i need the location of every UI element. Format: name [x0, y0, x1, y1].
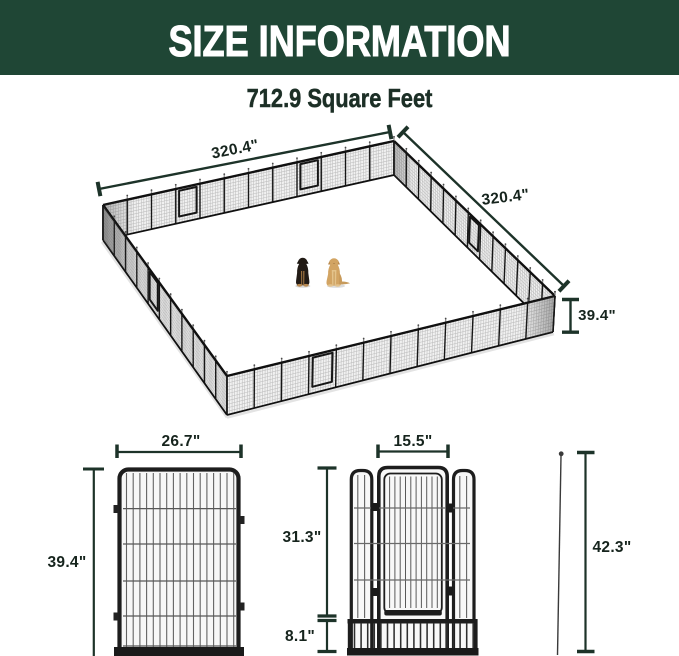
svg-text:39.4": 39.4"	[578, 307, 616, 324]
svg-text:31.3": 31.3"	[282, 529, 321, 546]
svg-text:320.4": 320.4"	[481, 186, 531, 209]
svg-text:8.1": 8.1"	[285, 628, 315, 645]
svg-text:39.4": 39.4"	[47, 554, 86, 571]
svg-text:26.7": 26.7"	[161, 433, 200, 450]
svg-text:15.5": 15.5"	[393, 433, 432, 450]
svg-text:42.3": 42.3"	[592, 539, 631, 556]
